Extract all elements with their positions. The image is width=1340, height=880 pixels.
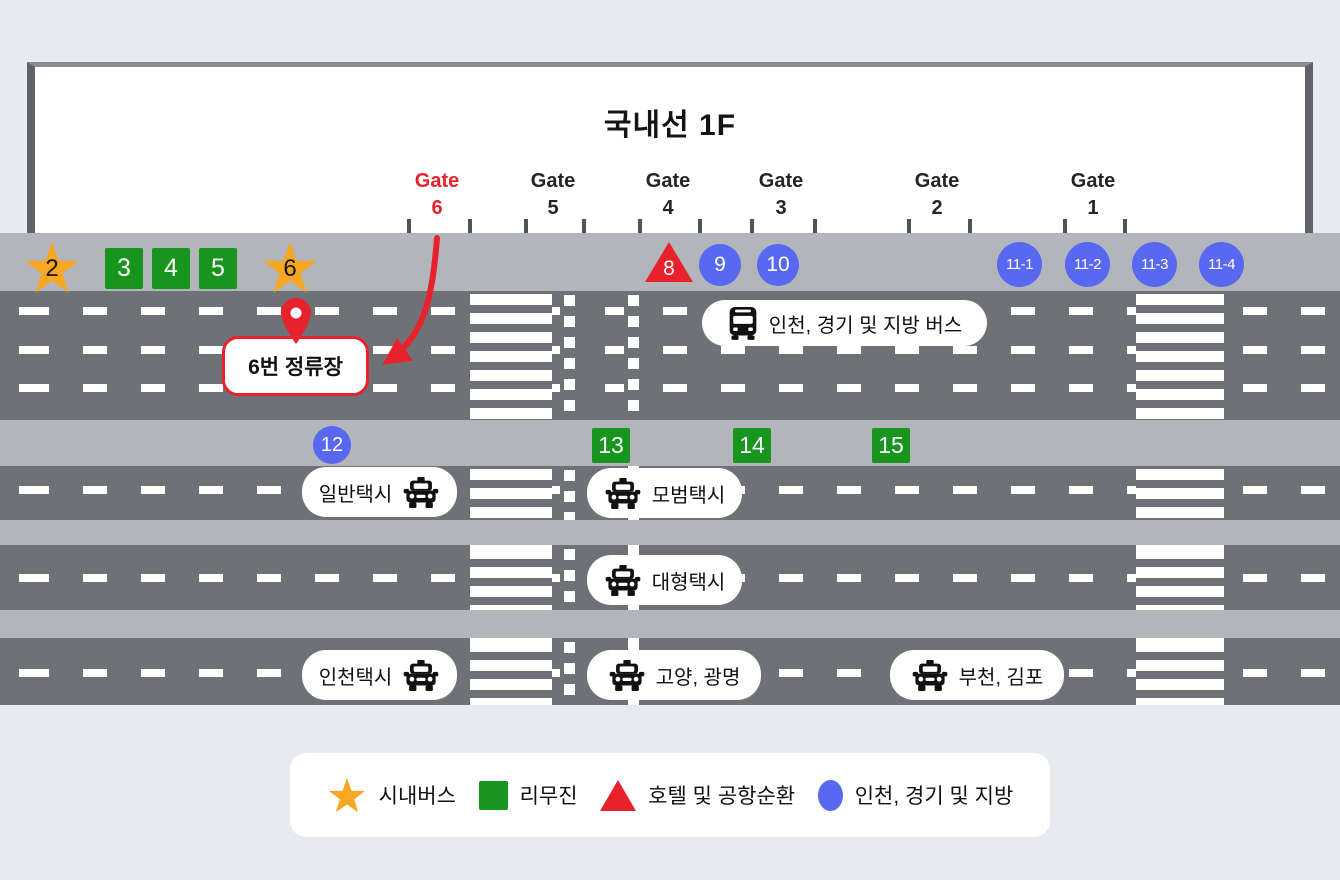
- dotted-lane-line: [624, 291, 642, 420]
- airport-curbside-map: 국내선 1F Gate6 Gate5 Gate4 Gate3 Gate2 Gat…: [0, 0, 1340, 880]
- legend-limousine: 리무진: [479, 780, 578, 810]
- taxi-icon: [911, 660, 949, 691]
- crosswalk: [1136, 545, 1224, 610]
- stop-marker-circle-11-4: 11-4: [1199, 242, 1244, 287]
- crosswalk: [470, 466, 552, 520]
- stop-marker-square-4: 4: [152, 248, 190, 289]
- large-taxi-label: 대형택시: [587, 555, 742, 605]
- stop-marker-square-5: 5: [199, 248, 237, 289]
- stop-6-callout: 6번 정류장: [222, 336, 369, 396]
- stop-marker-circle-11-1: 11-1: [997, 242, 1042, 287]
- median-2: [0, 610, 1340, 638]
- incheon-taxi-label: 인천택시: [302, 650, 457, 700]
- gate-3-label: Gate3: [736, 168, 826, 222]
- taxi-icon: [604, 565, 642, 596]
- gate-1-label: Gate1: [1048, 168, 1138, 222]
- dotted-lane-line: [560, 291, 578, 420]
- taxi-icon: [402, 660, 440, 691]
- dotted-lane-line: [560, 638, 578, 705]
- taxi-icon: [604, 478, 642, 509]
- stop-marker-square-14: 14: [733, 428, 771, 463]
- general-taxi-label: 일반택시: [302, 467, 457, 517]
- star-icon: [327, 776, 367, 814]
- stop-marker-square-13: 13: [592, 428, 630, 463]
- terminal-title: 국내선 1F: [35, 100, 1305, 144]
- taxi-icon: [608, 660, 646, 691]
- bucheon-gimpo-label: 부천, 김포: [890, 650, 1064, 700]
- legend-hotel-shuttle: 호텔 및 공항순환: [600, 780, 795, 811]
- bus-icon: [727, 306, 759, 340]
- crosswalk: [470, 638, 552, 705]
- legend-city-bus: 시내버스: [327, 776, 456, 814]
- taxi-island: [0, 420, 1340, 466]
- crosswalk: [1136, 466, 1224, 520]
- dotted-lane-line: [560, 545, 578, 610]
- stop-marker-square-15: 15: [872, 428, 910, 463]
- dotted-lane-line: [560, 466, 578, 520]
- triangle-icon: [600, 780, 636, 811]
- stop-marker-star-6: 6: [261, 239, 319, 295]
- stop-marker-circle-10: 10: [757, 244, 799, 286]
- stop-marker-star-2: 2: [23, 239, 81, 295]
- circle-icon: [818, 780, 843, 811]
- gate-2-label: Gate2: [892, 168, 982, 222]
- crosswalk: [1136, 291, 1224, 420]
- square-icon: [479, 781, 508, 810]
- crosswalk: [470, 545, 552, 610]
- map-pin-icon: [281, 298, 311, 344]
- stop-marker-circle-9: 9: [699, 244, 741, 286]
- crosswalk: [1136, 638, 1224, 705]
- gate-5-label: Gate5: [508, 168, 598, 222]
- legend-regional: 인천, 경기 및 지방: [818, 780, 1014, 811]
- median-1: [0, 520, 1340, 545]
- stop-marker-circle-11-3: 11-3: [1132, 242, 1177, 287]
- crosswalk: [470, 291, 552, 420]
- regional-bus-label: 인천, 경기 및 지방 버스: [702, 300, 987, 346]
- legend: 시내버스 리무진 호텔 및 공항순환 인천, 경기 및 지방: [290, 753, 1050, 837]
- goyang-gwangmyeong-label: 고양, 광명: [587, 650, 761, 700]
- stop-marker-circle-12: 12: [313, 426, 351, 464]
- stop-marker-circle-11-2: 11-2: [1065, 242, 1110, 287]
- gate-4-label: Gate4: [623, 168, 713, 222]
- taxi-icon: [402, 477, 440, 508]
- stop-marker-square-3: 3: [105, 248, 143, 289]
- deluxe-taxi-label: 모범택시: [587, 468, 742, 518]
- gate-6-label: Gate6: [392, 168, 482, 222]
- stop-marker-triangle-8: 8: [645, 242, 693, 282]
